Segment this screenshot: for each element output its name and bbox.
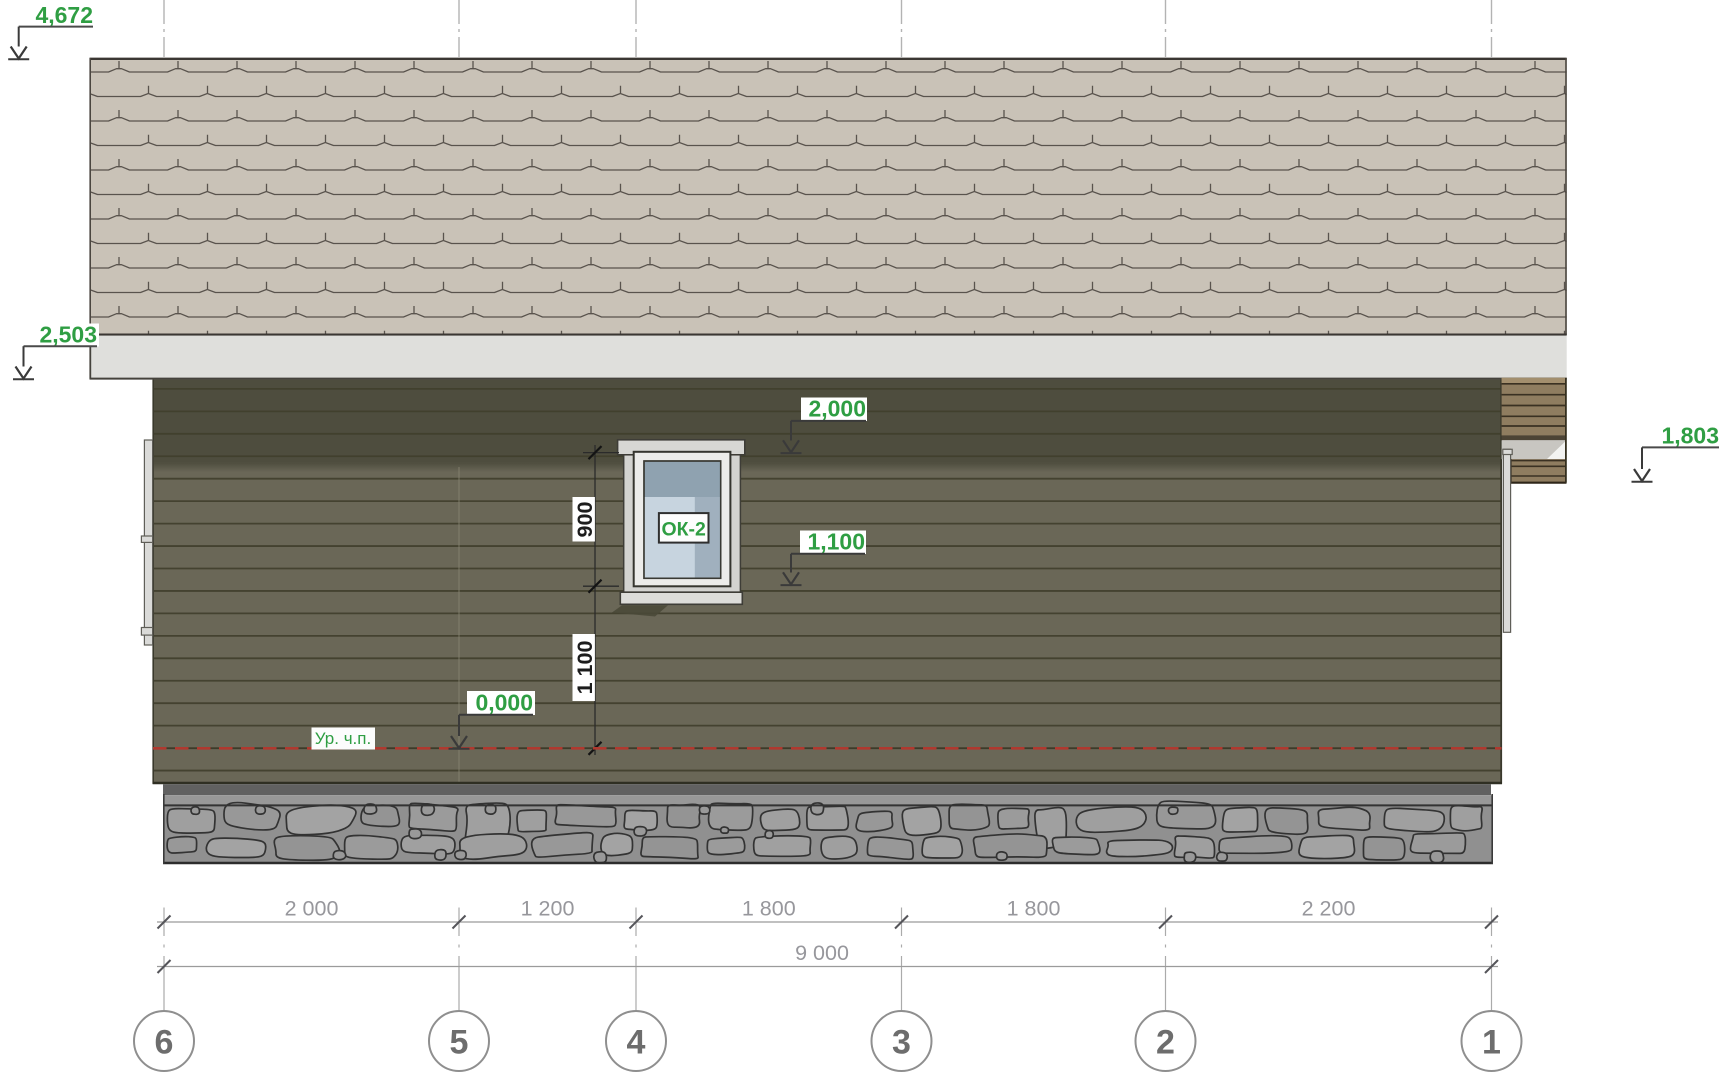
svg-text:1 800: 1 800 — [742, 897, 796, 921]
svg-text:2 000: 2 000 — [285, 897, 339, 921]
svg-text:1 100: 1 100 — [573, 641, 597, 695]
svg-text:0,000: 0,000 — [475, 690, 533, 716]
svg-text:2 200: 2 200 — [1302, 897, 1356, 921]
svg-text:900: 900 — [573, 502, 597, 538]
svg-text:2,503: 2,503 — [39, 322, 97, 348]
svg-text:6: 6 — [155, 1024, 174, 1062]
svg-text:4: 4 — [627, 1024, 646, 1062]
svg-text:2: 2 — [1156, 1024, 1175, 1062]
svg-text:1,803: 1,803 — [1661, 423, 1719, 449]
svg-text:1,100: 1,100 — [807, 529, 865, 555]
svg-text:Ур. ч.п.: Ур. ч.п. — [315, 729, 371, 748]
svg-text:1 800: 1 800 — [1007, 897, 1061, 921]
svg-text:2,000: 2,000 — [808, 396, 866, 422]
svg-text:1: 1 — [1482, 1024, 1501, 1062]
svg-text:9 000: 9 000 — [795, 941, 849, 965]
svg-text:4,672: 4,672 — [35, 2, 93, 28]
svg-text:1 200: 1 200 — [521, 897, 575, 921]
svg-text:ОК-2: ОК-2 — [661, 519, 706, 541]
svg-text:3: 3 — [892, 1024, 911, 1062]
svg-text:5: 5 — [450, 1024, 469, 1062]
